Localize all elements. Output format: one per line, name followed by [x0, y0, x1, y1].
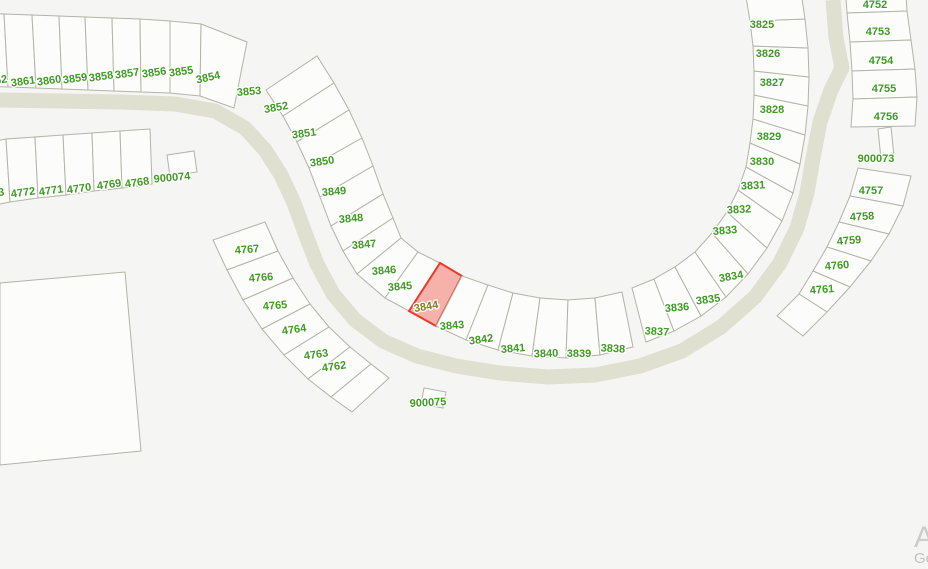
parcel-label-3828: 3828 [760, 104, 784, 116]
parcel-label-4767: 4767 [234, 243, 259, 257]
parcel-label-3841: 3841 [500, 342, 525, 356]
parcel-label-4756: 4756 [874, 111, 898, 123]
parcel-label-3846: 3846 [371, 264, 396, 278]
parcel-label-3836: 3836 [664, 301, 689, 315]
parcel-label-3848: 3848 [338, 212, 363, 226]
parcel-label-4770: 4770 [66, 181, 92, 196]
parcel-label-4760: 4760 [824, 259, 849, 273]
parcel-label-3826: 3826 [756, 48, 780, 60]
parcel-unlabeled[interactable] [746, 0, 805, 21]
parcel-3856[interactable] [140, 19, 170, 93]
parcel-label-3831: 3831 [741, 179, 766, 192]
parcel-label-4766: 4766 [248, 271, 273, 285]
parcel-label-3825: 3825 [750, 19, 774, 31]
parcel-label-4752: 4752 [863, 0, 887, 11]
parcel-label-3833: 3833 [712, 224, 737, 238]
parcel-label-900074: 900074 [153, 170, 191, 185]
parcel-label-3849: 3849 [321, 185, 346, 199]
parcel-map-canvas: 3862386138603859385838573856385538543853… [0, 0, 928, 569]
parcel-label-3830: 3830 [750, 156, 774, 168]
parcel-label-4768: 4768 [124, 175, 150, 190]
parcel-label-3832: 3832 [727, 203, 752, 216]
parcel-label-4757: 4757 [859, 185, 883, 197]
parcel-label-3847: 3847 [351, 238, 376, 252]
parcel-unlabeled[interactable] [0, 272, 141, 465]
parcel-label-900073: 900073 [858, 153, 895, 165]
parcel-label-4755: 4755 [872, 83, 896, 95]
parcel-label-3829: 3829 [757, 131, 781, 143]
parcel-label-4758: 4758 [850, 210, 875, 223]
parcel-label-3843: 3843 [439, 319, 464, 333]
parcel-label-3853: 3853 [236, 85, 261, 99]
parcel-label-4771: 4771 [38, 183, 64, 198]
parcel-label-4754: 4754 [869, 55, 894, 67]
parcel-label-3838: 3838 [600, 342, 625, 355]
parcel-label-3839: 3839 [567, 348, 591, 360]
parcel-label-4769: 4769 [96, 177, 122, 192]
parcel-label-4753: 4753 [866, 26, 890, 38]
map-viewport[interactable]: 3862386138603859385838573856385538543853… [0, 0, 928, 569]
parcel-label-3840: 3840 [534, 348, 559, 361]
parcel-label-900075: 900075 [409, 396, 446, 410]
parcel-label-4761: 4761 [809, 283, 834, 297]
parcel-label-3827: 3827 [760, 77, 784, 89]
parcel-label-4765: 4765 [262, 299, 287, 313]
parcel-label-3835: 3835 [695, 292, 721, 307]
parcel-label-3845: 3845 [387, 280, 412, 294]
parcel-label-4759: 4759 [836, 234, 861, 248]
parcel-label-3837: 3837 [644, 325, 669, 338]
